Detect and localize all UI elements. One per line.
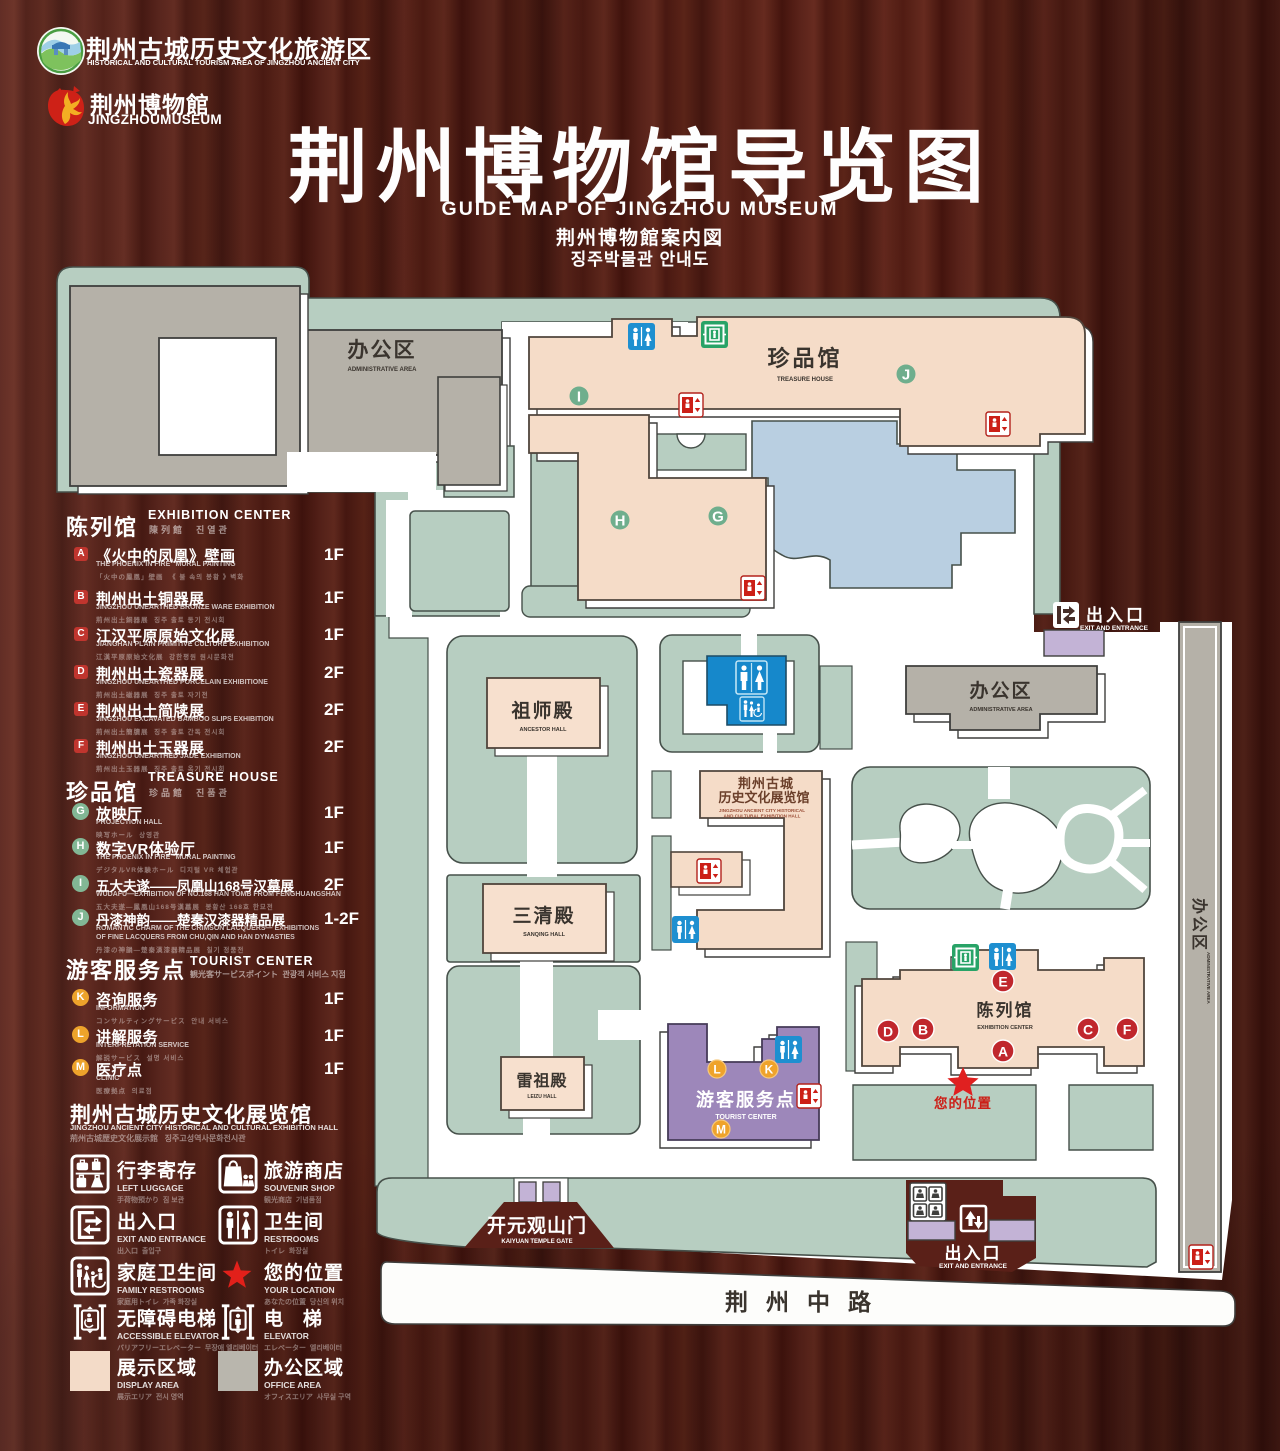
- svg-text:珍品馆: 珍品馆: [767, 346, 842, 371]
- svg-text:D: D: [883, 1024, 893, 1040]
- svg-text:C: C: [1083, 1022, 1093, 1038]
- svg-text:荆州中路: 荆州中路: [725, 1289, 889, 1315]
- svg-text:ADMINISTRATIVE AREA: ADMINISTRATIVE AREA: [348, 367, 418, 373]
- svg-text:出入口: 出入口: [945, 1243, 1002, 1263]
- svg-text:游客服务点: 游客服务点: [696, 1089, 796, 1110]
- svg-text:EXHIBITION CENTER: EXHIBITION CENTER: [977, 1025, 1033, 1031]
- svg-text:SANQING HALL: SANQING HALL: [523, 932, 566, 938]
- svg-text:ANCESTOR HALL: ANCESTOR HALL: [520, 727, 568, 733]
- svg-text:办公区: 办公区: [348, 339, 417, 362]
- svg-text:KAIYUAN TEMPLE GATE: KAIYUAN TEMPLE GATE: [501, 1239, 572, 1245]
- svg-text:I: I: [577, 389, 581, 406]
- svg-text:开元观山门: 开元观山门: [487, 1214, 587, 1237]
- svg-text:三清殿: 三清殿: [512, 904, 575, 927]
- svg-text:办公区: 办公区: [969, 679, 1032, 702]
- svg-text:AND CULTURAL EXHIBITION HALL: AND CULTURAL EXHIBITION HALL: [724, 814, 801, 819]
- svg-text:K: K: [765, 1063, 774, 1077]
- svg-text:ADMINISTRATIVE AREA: ADMINISTRATIVE AREA: [1206, 952, 1211, 1005]
- svg-text:ADMINISTRATIVE AREA: ADMINISTRATIVE AREA: [969, 707, 1032, 713]
- svg-text:H: H: [615, 513, 626, 530]
- svg-text:B: B: [918, 1022, 928, 1038]
- svg-text:办公区: 办公区: [1190, 898, 1209, 952]
- svg-text:EXIT AND ENTRANCE: EXIT AND ENTRANCE: [939, 1263, 1008, 1270]
- svg-text:L: L: [713, 1063, 720, 1077]
- svg-text:TOURIST CENTER: TOURIST CENTER: [715, 1114, 776, 1121]
- svg-text:历史文化展览馆: 历史文化展览馆: [718, 790, 809, 805]
- svg-text:EXIT AND ENTRANCE: EXIT AND ENTRANCE: [1080, 625, 1149, 632]
- svg-text:J: J: [902, 367, 910, 384]
- svg-text:M: M: [716, 1123, 726, 1137]
- svg-text:荆州古城: 荆州古城: [738, 776, 794, 791]
- svg-text:您的位置: 您的位置: [934, 1095, 992, 1111]
- svg-text:出入口: 出入口: [1086, 605, 1146, 625]
- svg-text:A: A: [998, 1044, 1008, 1060]
- svg-text:E: E: [998, 974, 1007, 990]
- svg-text:TREASURE HOUSE: TREASURE HOUSE: [777, 377, 833, 383]
- svg-text:祖师殿: 祖师殿: [510, 699, 574, 722]
- svg-text:G: G: [712, 509, 724, 526]
- svg-text:陈列馆: 陈列馆: [977, 1000, 1034, 1020]
- svg-text:F: F: [1123, 1022, 1132, 1038]
- svg-text:LEIZU HALL: LEIZU HALL: [527, 1094, 556, 1100]
- svg-text:雷祖殿: 雷祖殿: [516, 1071, 567, 1090]
- svg-text:JINGZHOU ANCIENT CITY HISTORIC: JINGZHOU ANCIENT CITY HISTORICAL: [719, 808, 805, 813]
